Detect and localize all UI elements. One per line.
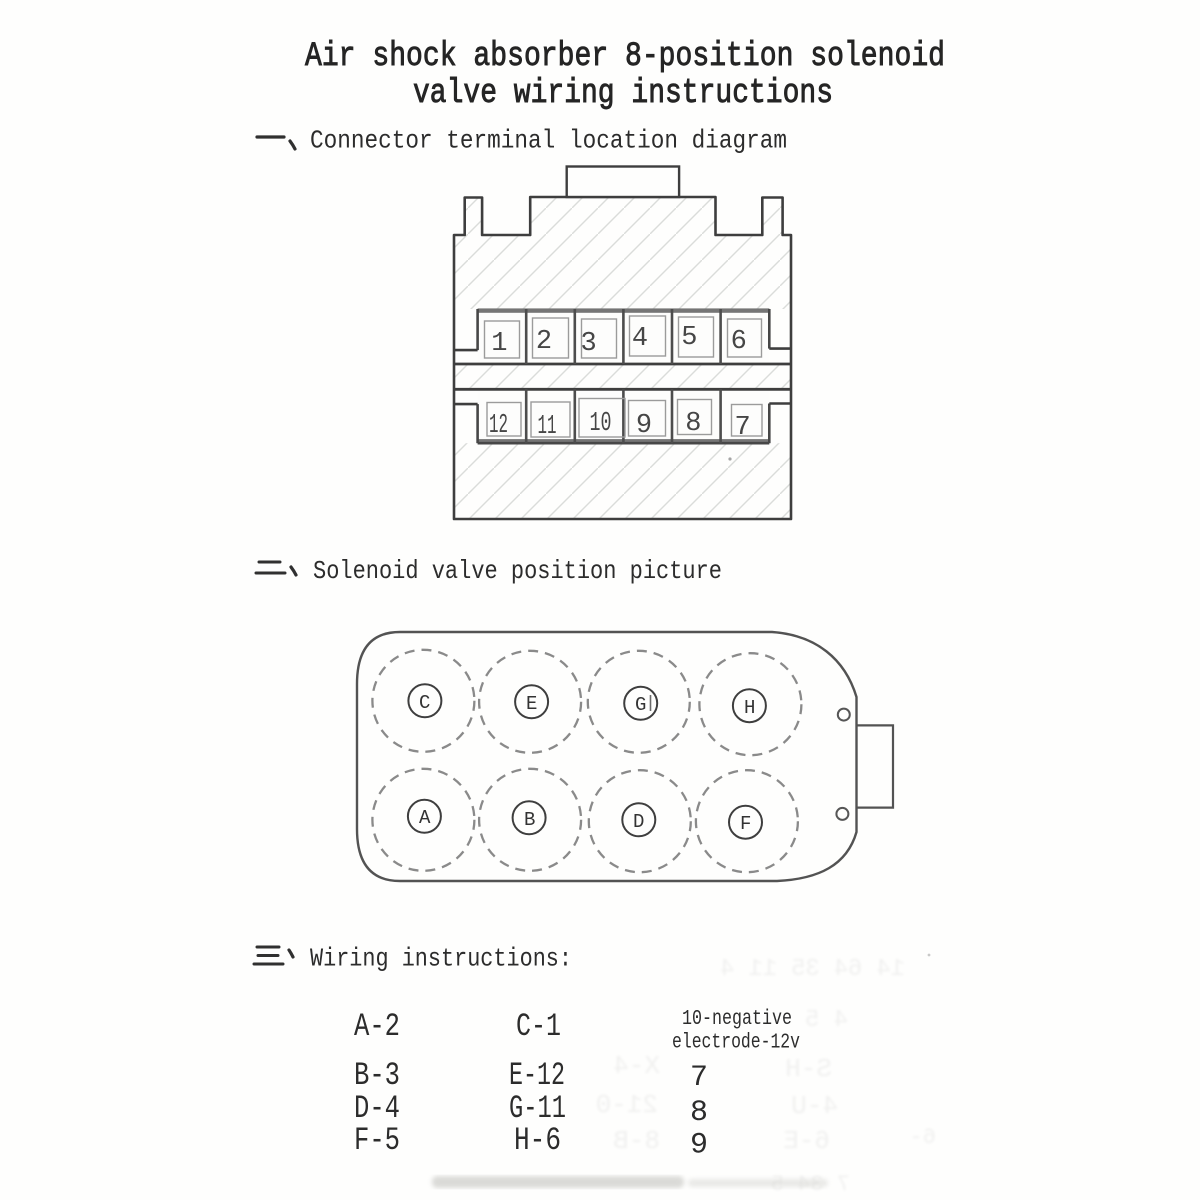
svg-text:electrode-12v: electrode-12v	[672, 1031, 800, 1055]
svg-text:11: 11	[538, 412, 557, 442]
svg-text:G: G	[635, 694, 646, 716]
svg-text:2: 2	[536, 327, 552, 357]
svg-text:F-5: F-5	[354, 1122, 400, 1159]
svg-text:H: H	[744, 697, 755, 719]
svg-text:B-3: B-3	[354, 1057, 400, 1094]
svg-text:valve wiring instructions: valve wiring instructions	[413, 75, 833, 113]
svg-text:8-B: 8-B	[613, 1126, 660, 1156]
svg-text:Air shock absorber 8-position: Air shock absorber 8-position solenoid	[305, 38, 945, 76]
svg-text:A: A	[419, 807, 431, 829]
svg-text:F: F	[740, 813, 751, 835]
svg-text:Wiring instructions:: Wiring instructions:	[310, 944, 572, 974]
svg-text:12: 12	[489, 411, 508, 441]
svg-text:6-E: 6-E	[783, 1126, 830, 1156]
svg-text:1: 1	[491, 329, 507, 359]
svg-text:14 64 35 11 4: 14 64 35 11 4	[720, 956, 905, 983]
svg-text:X-4: X-4	[613, 1051, 660, 1081]
svg-text:10: 10	[590, 409, 612, 439]
svg-text:Connector terminal location di: Connector terminal location diagram	[310, 126, 787, 156]
svg-text:3: 3	[581, 329, 597, 359]
svg-text:A-2: A-2	[354, 1008, 400, 1045]
svg-text:7: 7	[735, 413, 751, 443]
svg-text:4 5: 4 5	[805, 1007, 848, 1034]
svg-text:4: 4	[632, 324, 648, 354]
svg-text:9: 9	[636, 411, 652, 441]
svg-text:E-12: E-12	[509, 1057, 565, 1094]
svg-text:7: 7	[690, 1061, 708, 1095]
svg-text:6-: 6-	[910, 1125, 936, 1150]
svg-text:5: 5	[681, 323, 697, 353]
svg-text:E: E	[526, 693, 537, 715]
svg-text:10-negative: 10-negative	[682, 1007, 792, 1031]
svg-text:H-6: H-6	[514, 1122, 561, 1159]
svg-text:C-1: C-1	[516, 1008, 561, 1045]
svg-text:21-0: 21-0	[596, 1090, 658, 1120]
svg-text:6: 6	[731, 327, 747, 357]
svg-text:8: 8	[685, 409, 701, 439]
svg-text:4-U: 4-U	[791, 1091, 838, 1121]
svg-text:9: 9	[690, 1129, 708, 1163]
svg-text:Solenoid valve position pictur: Solenoid valve position picture	[313, 556, 722, 586]
svg-text:C: C	[419, 692, 430, 714]
svg-text:S-H: S-H	[785, 1054, 832, 1084]
svg-text:B: B	[524, 809, 535, 831]
svg-text:8: 8	[690, 1096, 708, 1130]
svg-text:D: D	[633, 811, 644, 833]
